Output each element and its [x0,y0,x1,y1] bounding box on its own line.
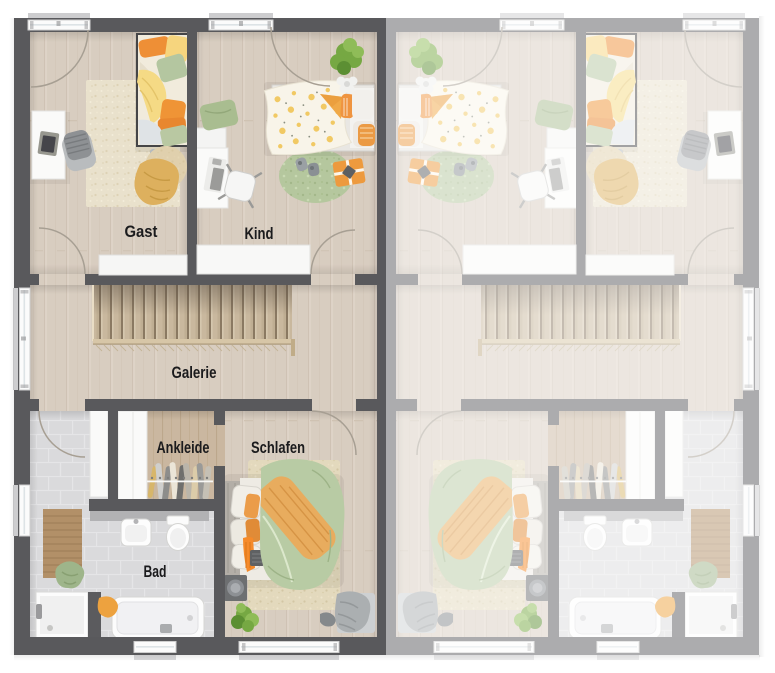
svg-text:Ankleide: Ankleide [157,438,210,457]
svg-text:Bad: Bad [144,562,167,581]
svg-text:Gast: Gast [125,222,158,241]
svg-text:Schlafen: Schlafen [251,438,305,457]
svg-text:Kind: Kind [245,224,274,243]
svg-text:Galerie: Galerie [172,363,217,382]
